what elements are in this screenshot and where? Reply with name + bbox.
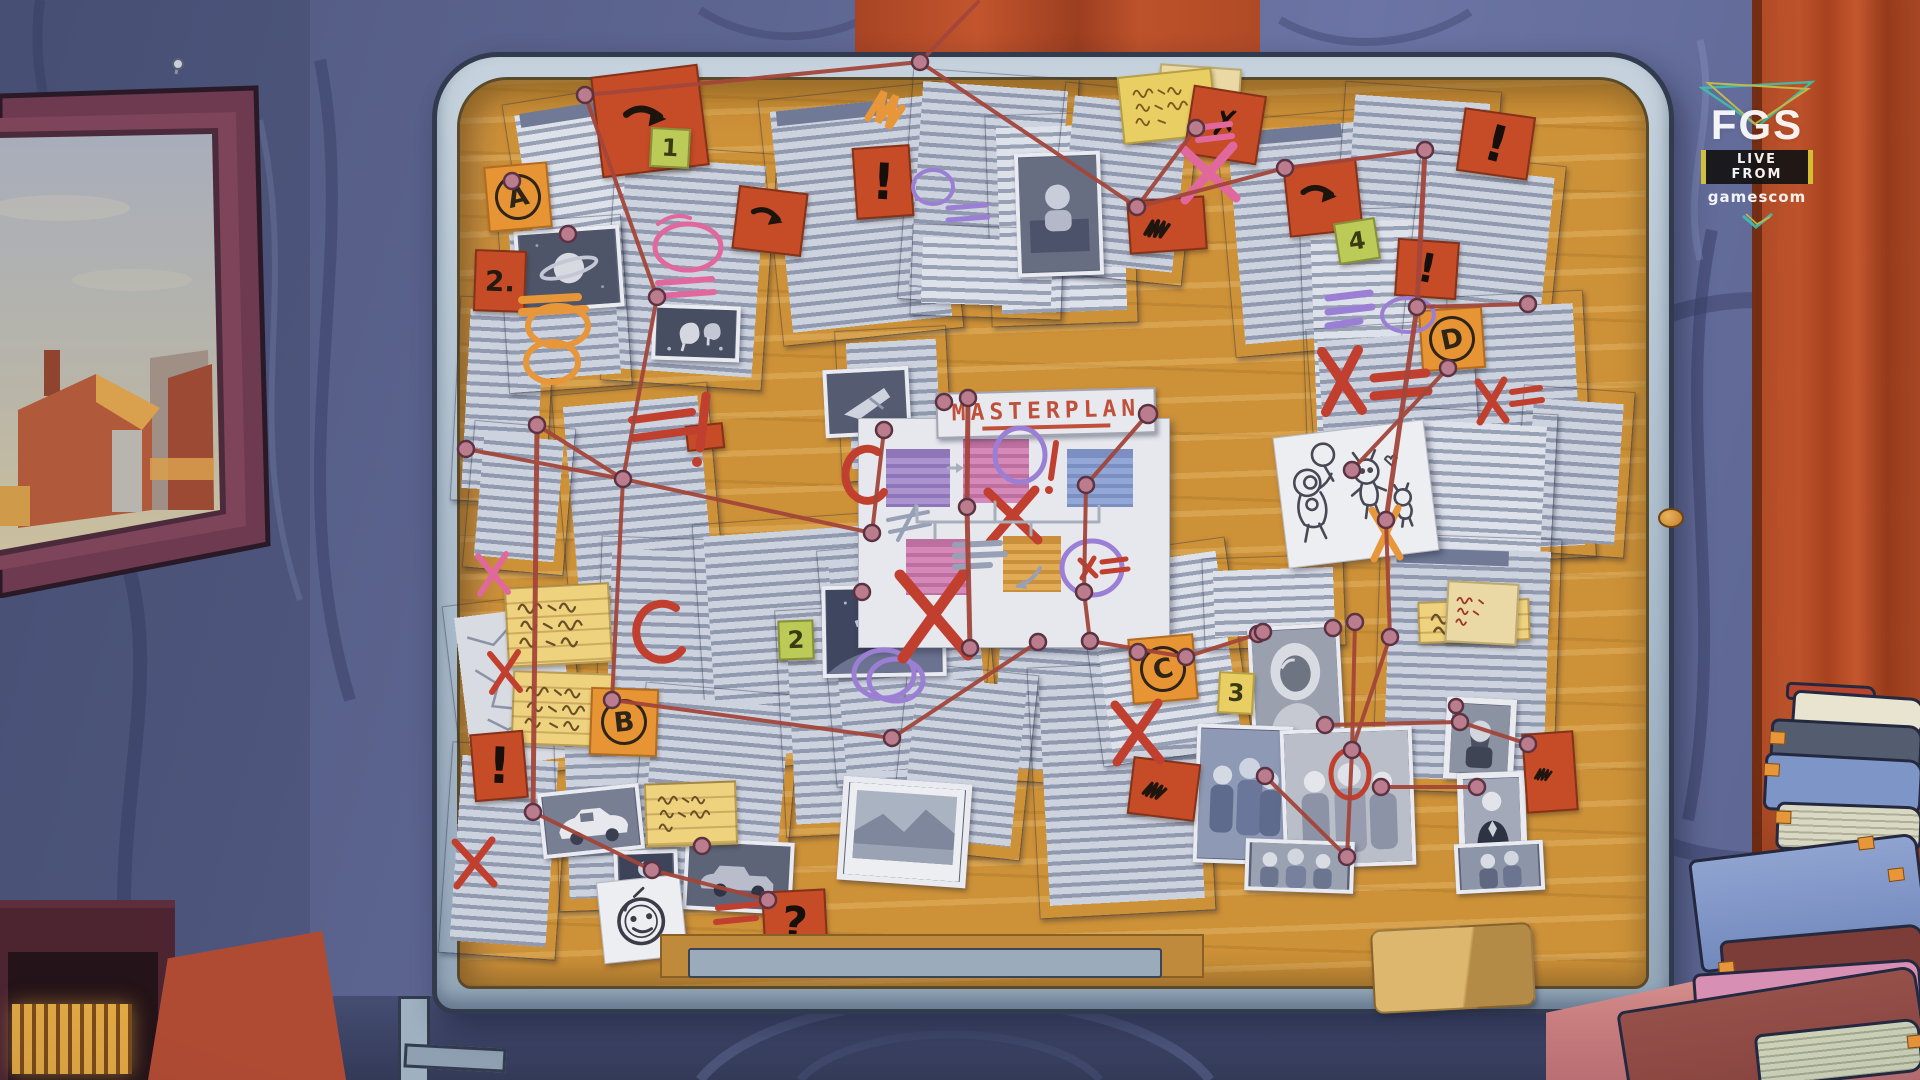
note-label-d: D — [1425, 312, 1480, 367]
curved-arrow-icon — [744, 199, 796, 243]
fgs-logo-text: FGS — [1692, 104, 1822, 146]
flow-box-purple — [886, 449, 950, 507]
photo-bearded-man[interactable] — [1443, 696, 1517, 782]
sticky-note-arrow-small[interactable] — [731, 185, 808, 257]
note-label-4: 4 — [1347, 226, 1368, 256]
sticky-note-scribble[interactable] — [1127, 756, 1202, 822]
photo-group-bottom[interactable] — [1244, 838, 1355, 894]
black-scribble — [1137, 770, 1191, 808]
fgs-watermark: FGS LIVE FROM gamescom — [1692, 76, 1822, 232]
sticky-note-2[interactable]: 2 — [777, 619, 814, 660]
note-label-2dot: 2. — [484, 264, 515, 298]
photo-suit-man[interactable] — [1457, 771, 1528, 851]
heater-grate — [12, 1004, 132, 1074]
handwritten-note[interactable] — [504, 582, 613, 667]
sticky-note-2dot[interactable]: 2. — [473, 249, 527, 313]
sticky-note-a[interactable]: A — [483, 161, 553, 232]
note-label-b: B — [599, 697, 650, 748]
landscape-image — [843, 782, 966, 882]
handwritten-note-red-ink[interactable] — [1444, 580, 1519, 646]
bookmark-tab — [1857, 836, 1874, 851]
note-label-exclaim: ! — [1414, 248, 1440, 291]
sticky-note-d[interactable]: D — [1418, 306, 1486, 372]
note-label-a: A — [490, 169, 545, 224]
masterplan-banner[interactable]: MASTERPLAN — [935, 387, 1156, 439]
chevron-down-icon — [1739, 212, 1775, 232]
car-image — [541, 787, 641, 855]
photo-car[interactable] — [537, 783, 645, 859]
sticky-note-exclaim[interactable]: ! — [1394, 238, 1460, 300]
bookmark-tab — [1769, 731, 1786, 745]
red-handwriting-scribble — [1451, 588, 1513, 637]
sticky-note-4[interactable]: 4 — [1333, 217, 1381, 265]
cabinet — [0, 900, 175, 1080]
board-eraser-sponge[interactable] — [1370, 922, 1536, 1014]
note-label-cross: ✗ — [1208, 106, 1241, 144]
sticky-note-c[interactable]: C — [1127, 633, 1199, 705]
handwritten-note[interactable] — [644, 780, 738, 847]
handwriting-scribble — [509, 592, 608, 659]
headline-bar — [776, 100, 889, 126]
sticky-note-exclaim[interactable]: ! — [852, 144, 915, 220]
photo-mushroom-clouds[interactable] — [651, 303, 741, 362]
handwriting-scribble — [648, 788, 734, 841]
figure-image — [1018, 155, 1100, 274]
photo-saturn[interactable] — [513, 224, 624, 313]
sticky-note-scribble[interactable] — [1126, 195, 1208, 254]
flow-box-blue — [1067, 449, 1133, 507]
painting-nail — [173, 59, 183, 69]
mushroom-image — [655, 308, 737, 359]
bookmark-tab — [1887, 867, 1904, 882]
sticky-note-cross[interactable]: ✗ — [1183, 85, 1267, 166]
doodle — [1274, 420, 1438, 563]
board-knob[interactable] — [1658, 508, 1684, 528]
photo-pair[interactable] — [1454, 840, 1545, 895]
drawing-astronaut-aliens[interactable] — [1273, 419, 1440, 569]
sticky-note-3[interactable]: 3 — [1217, 671, 1255, 715]
note-label-c: C — [1135, 641, 1190, 696]
black-scribble — [1529, 748, 1570, 797]
board-tray — [688, 948, 1162, 978]
portrait-image — [1449, 703, 1511, 776]
gamescom-brand: gamescom — [1692, 188, 1822, 206]
framed-painting — [0, 58, 272, 598]
flow-box-orange — [1003, 536, 1061, 592]
sticky-note-exclaim[interactable]: ! — [469, 730, 529, 802]
newspaper-clipping[interactable] — [462, 420, 577, 576]
pair-image — [1458, 844, 1541, 890]
note-label-exclaim: ! — [870, 156, 895, 207]
game-scene: MASTERPLAN — [0, 0, 1920, 1080]
curved-arrow-icon — [1295, 175, 1351, 220]
group-image — [1248, 842, 1350, 889]
saturn-image — [518, 229, 621, 310]
bookmark-tab — [1775, 810, 1791, 824]
bookmark-tab — [1907, 1034, 1920, 1049]
portrait-image — [1463, 777, 1521, 845]
black-scribble — [1138, 206, 1196, 244]
note-label-2: 2 — [787, 626, 805, 655]
sticky-note-scribble[interactable] — [1521, 730, 1578, 813]
note-label-1: 1 — [661, 134, 679, 163]
cabinet-opening — [8, 952, 158, 1080]
sticky-note-1[interactable]: 1 — [649, 127, 691, 169]
fgs-tagline: LIVE FROM — [1701, 150, 1813, 184]
masterplan-title: MASTERPLAN — [951, 395, 1140, 426]
sticky-note-b[interactable]: B — [589, 687, 659, 757]
photo-landscape[interactable] — [837, 776, 973, 889]
bookmark-tab — [1763, 763, 1780, 777]
curtain-top — [855, 0, 1260, 55]
note-label-exclaim: ! — [487, 741, 512, 792]
flow-box-pink — [963, 439, 1029, 503]
note-label-exclaim: ! — [1479, 117, 1514, 171]
photo-figure[interactable] — [1014, 151, 1104, 278]
flowchart-sheet[interactable] — [858, 418, 1170, 648]
sticky-note-exclaim[interactable]: ! — [1456, 107, 1536, 180]
note-label-3: 3 — [1227, 679, 1245, 708]
flow-box-pink2 — [906, 539, 968, 595]
sticky-tab[interactable] — [685, 422, 726, 452]
